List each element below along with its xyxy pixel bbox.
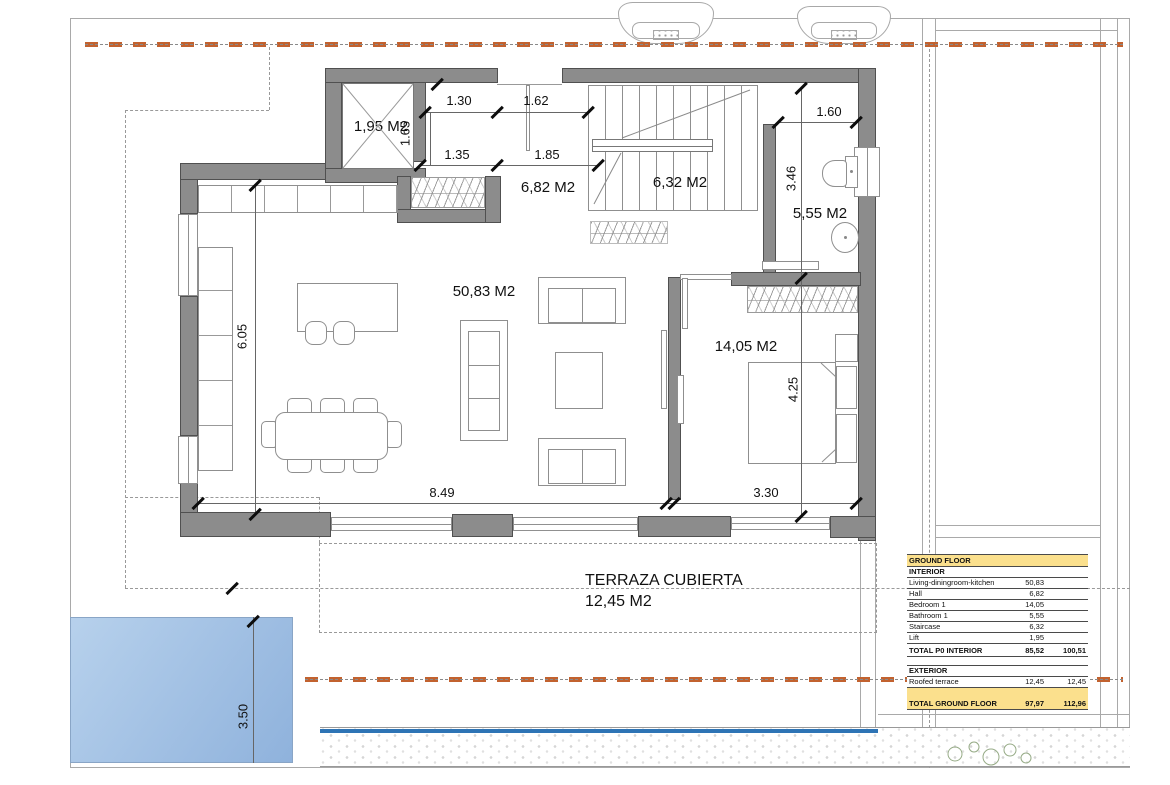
pillow	[836, 414, 857, 463]
room-label-lift: 1,95 M2	[341, 118, 421, 135]
stair-rail-line	[593, 146, 712, 147]
wall-left-c	[180, 483, 198, 513]
area-table-section-row: INTERIOR	[907, 567, 1088, 578]
area-table-title-row: GROUND FLOOR	[907, 554, 1088, 567]
window	[178, 214, 198, 296]
setback-line	[269, 47, 270, 110]
room-label-staircase: 6,32 M2	[640, 174, 720, 191]
dim-label-1-60: 1.60	[809, 104, 849, 119]
neighbor-plot-line	[935, 537, 1100, 538]
terrace-name: TERRAZA CUBIERTA	[585, 570, 743, 591]
wall-bottom-1	[180, 512, 331, 537]
wall-bottom-corner	[830, 516, 876, 538]
tv-panel	[661, 330, 667, 409]
kitchen-counter-side	[198, 247, 233, 471]
sink-drain	[844, 236, 847, 239]
neighbor-plot-line	[935, 30, 1117, 31]
dim-label-1-62: 1.62	[516, 93, 556, 108]
car-grille	[831, 30, 857, 40]
window	[178, 436, 198, 484]
dimension-line	[425, 112, 588, 113]
dimension-line	[253, 617, 254, 763]
sofa-cushions	[548, 288, 616, 323]
site-line	[878, 714, 1130, 715]
dim-label-8-49: 8.49	[422, 485, 462, 500]
water-edge	[320, 729, 878, 733]
wall-closet-right	[485, 176, 501, 223]
window	[513, 517, 638, 531]
room-label-hall: 6,82 M2	[508, 179, 588, 196]
wall-left-b	[180, 296, 198, 436]
area-table-row: Bedroom 1 14,05	[907, 600, 1088, 611]
dim-label-3-50: 3.50	[236, 697, 251, 737]
dimension-line	[255, 185, 256, 514]
tv-panel	[677, 375, 684, 424]
setback-line	[125, 110, 126, 588]
car-icon	[797, 6, 891, 44]
window	[731, 517, 830, 530]
dimension-line	[801, 88, 802, 516]
toilet-bowl	[822, 160, 847, 187]
site-line	[1117, 18, 1118, 768]
dim-label-4-25: 4.25	[786, 370, 801, 410]
area-table-section-row: EXTERIOR	[907, 666, 1088, 677]
wardrobe	[747, 286, 858, 313]
tv-panel	[682, 278, 688, 329]
swimming-pool	[70, 617, 293, 763]
area-table-row: Hall 6,82	[907, 589, 1088, 600]
terrace-label: TERRAZA CUBIERTA 12,45 M2	[585, 570, 743, 612]
wall-right	[858, 68, 876, 541]
sofa-cushions	[468, 331, 500, 431]
room-label-bathroom: 5,55 M2	[780, 205, 860, 222]
dim-label-3-30: 3.30	[746, 485, 786, 500]
dimension-line	[778, 122, 856, 123]
dim-label-3-46: 3.46	[784, 159, 799, 199]
area-table: GROUND FLOOR INTERIOR Living-diningroom-…	[907, 554, 1088, 710]
neighbor-plot-line	[935, 525, 1100, 526]
sofa-cushions	[548, 449, 616, 484]
dimension-line	[420, 165, 598, 166]
dimension-line	[198, 503, 856, 504]
dining-chair	[387, 421, 402, 448]
floor-plan-canvas: 1.30 1.62 1.65 1.35 1.85 1.60 3.46 6.05 …	[0, 0, 1170, 785]
stair-rail	[592, 139, 713, 152]
planting-strip	[320, 727, 1130, 767]
dim-label-1-85: 1.85	[527, 147, 567, 162]
dimension-line	[430, 112, 431, 165]
area-table-row: Bathroom 1 5,55	[907, 611, 1088, 622]
overhang-line	[125, 497, 319, 498]
wall-lift-top	[325, 68, 498, 83]
wall-stair-top	[562, 68, 861, 83]
plot-boundary-top	[85, 42, 1123, 47]
shelf	[762, 261, 819, 270]
setback-line	[125, 110, 269, 111]
toilet-button	[850, 170, 853, 173]
dining-chair	[261, 421, 276, 448]
room-label-bedroom: 14,05 M2	[706, 338, 786, 355]
area-table-row: Lift 1,95	[907, 633, 1088, 644]
nightstand	[835, 334, 858, 362]
kitchen-counter	[198, 185, 398, 213]
dining-table	[275, 412, 388, 460]
understair-storage	[590, 221, 668, 244]
area-table-total-row: TOTAL P0 INTERIOR 85,52 100,51	[907, 644, 1088, 657]
area-table-spacer	[907, 657, 1088, 666]
area-table-row: Roofed terrace 12,45 12,45	[907, 677, 1088, 688]
window	[331, 517, 452, 531]
dim-label-6-05: 6.05	[235, 317, 250, 357]
coffee-table	[555, 352, 603, 409]
dim-label-1-30: 1.30	[439, 93, 479, 108]
area-table-row: Living-diningroom-kitchen 50,83	[907, 578, 1088, 589]
wall-bath-stair	[763, 124, 776, 273]
terrace-area: 12,45 M2	[585, 591, 743, 612]
room-label-living: 50,83 M2	[444, 283, 524, 300]
wall-bottom-2	[452, 514, 513, 537]
wall-top-left	[180, 163, 328, 180]
closet	[411, 177, 485, 208]
area-table-row: Staircase 6,32	[907, 622, 1088, 633]
dim-label-1-35: 1.35	[437, 147, 477, 162]
site-line	[1100, 18, 1101, 768]
bar-stool	[333, 321, 355, 345]
area-table-grand-total-row: TOTAL GROUND FLOOR 97,97 112,96	[907, 688, 1088, 710]
wall-left-a	[180, 179, 198, 214]
area-table-title: GROUND FLOOR	[907, 556, 1088, 566]
car-grille	[653, 30, 679, 40]
bar-stool	[305, 321, 327, 345]
pillow	[836, 366, 857, 409]
wall-bottom-3	[638, 516, 731, 537]
